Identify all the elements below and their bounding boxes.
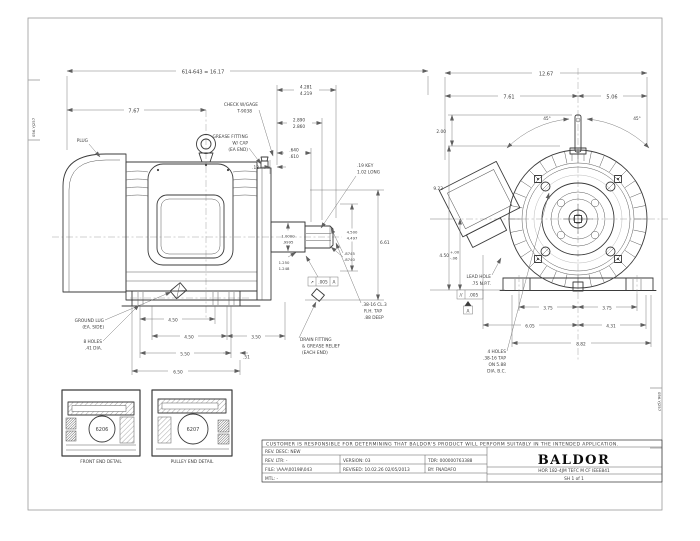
- revised-date: REVISED: 10.02.26 02/05/2013: [343, 467, 410, 473]
- angle-right: 45°: [633, 116, 641, 122]
- rev-ltr: REV. LTR: -: [265, 458, 288, 464]
- dim-rb: 4.31: [606, 324, 616, 330]
- note-drain-2: & GREASE RELIEF: [302, 344, 341, 350]
- disclaimer-text: CUSTOMER IS RESPONSIBLE FOR DETERMINING …: [266, 441, 619, 447]
- cooling-fin: [511, 206, 523, 208]
- cooling-fin: [589, 152, 591, 164]
- cooling-fin: [618, 259, 626, 267]
- cooling-fin: [521, 250, 531, 257]
- side-view: [52, 110, 348, 318]
- cooling-fin: [609, 266, 616, 276]
- cooling-fin: [540, 162, 547, 172]
- cooling-fin: [565, 274, 567, 286]
- cooling-fin: [589, 274, 591, 286]
- dim-e1: 3.75: [543, 306, 553, 312]
- title-block: CUSTOMER IS RESPONSIBLE FOR DETERMINING …: [262, 440, 662, 482]
- mtl: MTL: -: [265, 476, 279, 482]
- cooling-fin: [630, 241, 641, 246]
- note-4holes-3: ON 5.88: [488, 362, 506, 368]
- cooling-fin: [625, 181, 635, 188]
- dim-761: 7.61: [503, 95, 514, 101]
- dim-foot-3: 3.50: [251, 335, 261, 341]
- version: VERSION: 03: [343, 458, 371, 464]
- dim-661: 6.61: [380, 240, 390, 246]
- dim-foot-1: 4.50: [168, 318, 178, 324]
- note-tap-3: .88 DEEP: [364, 315, 384, 321]
- ground-lug-symbol: [170, 283, 186, 299]
- end-view-dimensions: 12.67 7.61 5.06 45° 45° 2.00 9.23 4.50 +…: [430, 70, 651, 375]
- dim-ab: 6.05: [525, 324, 535, 330]
- dim-1250-min: 1.248: [279, 266, 290, 271]
- pulley-end-detail: 6207 PULLEY END DETAIL: [152, 390, 232, 465]
- front-end-detail: 6206 FRONT END DETAIL: [62, 390, 140, 465]
- note-tap-1: .38-16 CL.3: [362, 302, 387, 308]
- gdt-frame-end: // .005 A: [457, 290, 483, 315]
- pulley-detail-caption: PULLEY END DETAIL: [171, 459, 214, 465]
- dim-450d-tol-minus: -.06: [450, 256, 458, 261]
- dim-640-max: .640: [289, 148, 299, 154]
- revised-by: BY: FNADAFO: [428, 467, 457, 473]
- note-key-2: 1.02 LONG: [357, 170, 380, 176]
- dim-dia1-max: 1.0000: [281, 234, 295, 239]
- note-grease-1: GREASE FITTING: [212, 134, 248, 140]
- cooling-fin: [511, 230, 523, 232]
- grease-fitting-symbol: [261, 157, 268, 168]
- cooling-fin: [618, 171, 626, 179]
- dim-4500-max: 4.500: [347, 230, 358, 235]
- drawing-page: 056.YJ257 056.YJ257: [0, 0, 700, 541]
- cooling-fin: [633, 230, 645, 232]
- dim-767: 7.67: [128, 109, 139, 115]
- note-lead-hole-2: .75 N.P.T.: [471, 281, 491, 287]
- note-lug-1: GROUND LUG: [75, 318, 104, 324]
- dim-1250-max: 1.250: [279, 260, 290, 265]
- cooling-fin: [625, 250, 635, 257]
- cooling-fin: [552, 271, 557, 282]
- gdt-symbol: ↗: [310, 281, 314, 286]
- note-8holes-2: .41 DIA.: [85, 346, 102, 352]
- dim-13: .13: [252, 165, 259, 171]
- dim-506: 5.06: [606, 95, 617, 101]
- angle-left: 45°: [543, 116, 551, 122]
- note-check-gage-2: T-9038: [236, 109, 252, 115]
- dim-640-min: .610: [289, 154, 299, 160]
- cooling-fin: [521, 181, 531, 188]
- dim-200: 2.00: [436, 129, 446, 135]
- note-drain-1: DRAIN FITTING: [300, 337, 332, 343]
- cooling-fin: [600, 156, 605, 167]
- cooling-fin: [530, 171, 538, 179]
- margin-label-left: 056.YJ257: [31, 117, 36, 137]
- note-8holes-1: 8 HOLES: [83, 339, 102, 345]
- dim-base: 8.82: [576, 342, 586, 348]
- side-view-dimensions: 614-643 = 16.17 7.67 4.281 4.219 2.890 2…: [67, 67, 428, 376]
- dim-450d-tol-plus: +.00: [450, 250, 460, 255]
- gdt-frame-side: ↗ .005 A: [306, 256, 338, 286]
- dim-shaft-ext-max: 4.281: [300, 85, 313, 91]
- gdt2-datum: A: [467, 309, 470, 315]
- note-plug: PLUG: [77, 138, 88, 144]
- end-view: [439, 68, 668, 362]
- model-line: HOR 182-4JM TEFC M CF IEEE841: [538, 468, 610, 474]
- note-4holes-4: DIA. B.C.: [487, 369, 506, 375]
- dim-2890-max: 2.890: [293, 118, 306, 124]
- note-key-1: .19 KEY: [357, 163, 374, 169]
- conduit-box: [439, 161, 526, 249]
- dim-foot-6: 6.50: [173, 370, 183, 376]
- gdt2-value: .005: [469, 293, 479, 299]
- baldor-logo: BALDOR: [538, 453, 611, 468]
- dim-2890-min: 2.860: [293, 124, 306, 130]
- rev-desc: REV. DESC: NEW: [265, 449, 301, 455]
- gdt-value: .005: [318, 280, 328, 286]
- cooling-fin: [600, 271, 605, 282]
- dim-foot-5: .51: [243, 355, 250, 361]
- gdt-datum: A: [333, 280, 336, 286]
- note-4holes-1: 4 HOLES: [487, 349, 506, 355]
- cooling-fin: [609, 162, 616, 172]
- dim-450d: 4.50: [439, 253, 449, 259]
- file-path: FILE: \AAA\00198\043: [265, 467, 312, 473]
- note-4holes-2: .38-16 TAP: [483, 356, 506, 362]
- dim-foot-4: 5.50: [180, 352, 190, 358]
- dim-4500-min: 4.497: [347, 236, 358, 241]
- note-grease-3: (EA END): [228, 147, 248, 153]
- cooling-fin: [515, 193, 526, 198]
- cooling-fin: [530, 259, 538, 267]
- dim-dia2-min: .8740: [344, 257, 355, 262]
- note-drain-3: (EACH END): [302, 350, 328, 356]
- front-detail-caption: FRONT END DETAIL: [80, 459, 122, 465]
- note-lead-hole-1: LEAD HOLE: [467, 274, 492, 280]
- cooling-fin: [565, 152, 567, 164]
- drain-fitting-symbol: [312, 289, 325, 302]
- cooling-fin: [515, 241, 526, 246]
- dim-dia2-max: .8745: [344, 251, 355, 256]
- drawing-canvas: 056.YJ257 056.YJ257: [0, 0, 700, 541]
- dim-e2: 3.75: [602, 306, 612, 312]
- front-bearing-number: 6206: [96, 427, 109, 433]
- note-lug-2: (EA. SIDE): [82, 325, 104, 331]
- dim-1267: 12.67: [539, 72, 553, 78]
- dim-foot-2: 4.50: [184, 335, 194, 341]
- sheet-number: SH 1 of 1: [564, 476, 584, 482]
- dim-overall-length: 614-643 = 16.17: [182, 70, 225, 76]
- tdr: TDR: 000000763388: [427, 458, 473, 464]
- pulley-bearing-number: 6207: [187, 427, 200, 433]
- dim-shaft-ext-min: 4.219: [300, 91, 313, 97]
- cooling-fin: [552, 156, 557, 167]
- note-check-gage-1: CHECK W/GAGE: [224, 102, 258, 108]
- cooling-fin: [540, 266, 547, 276]
- margin-label-right: 056.YJ257: [657, 392, 662, 412]
- note-grease-2: W/ CAP: [232, 141, 248, 147]
- cooling-fin: [630, 193, 641, 198]
- dim-dia1-min: .9995: [283, 240, 294, 245]
- note-tap-2: R.H. TAP: [364, 309, 382, 315]
- cooling-fin: [633, 206, 645, 208]
- dim-923: 9.23: [433, 186, 443, 192]
